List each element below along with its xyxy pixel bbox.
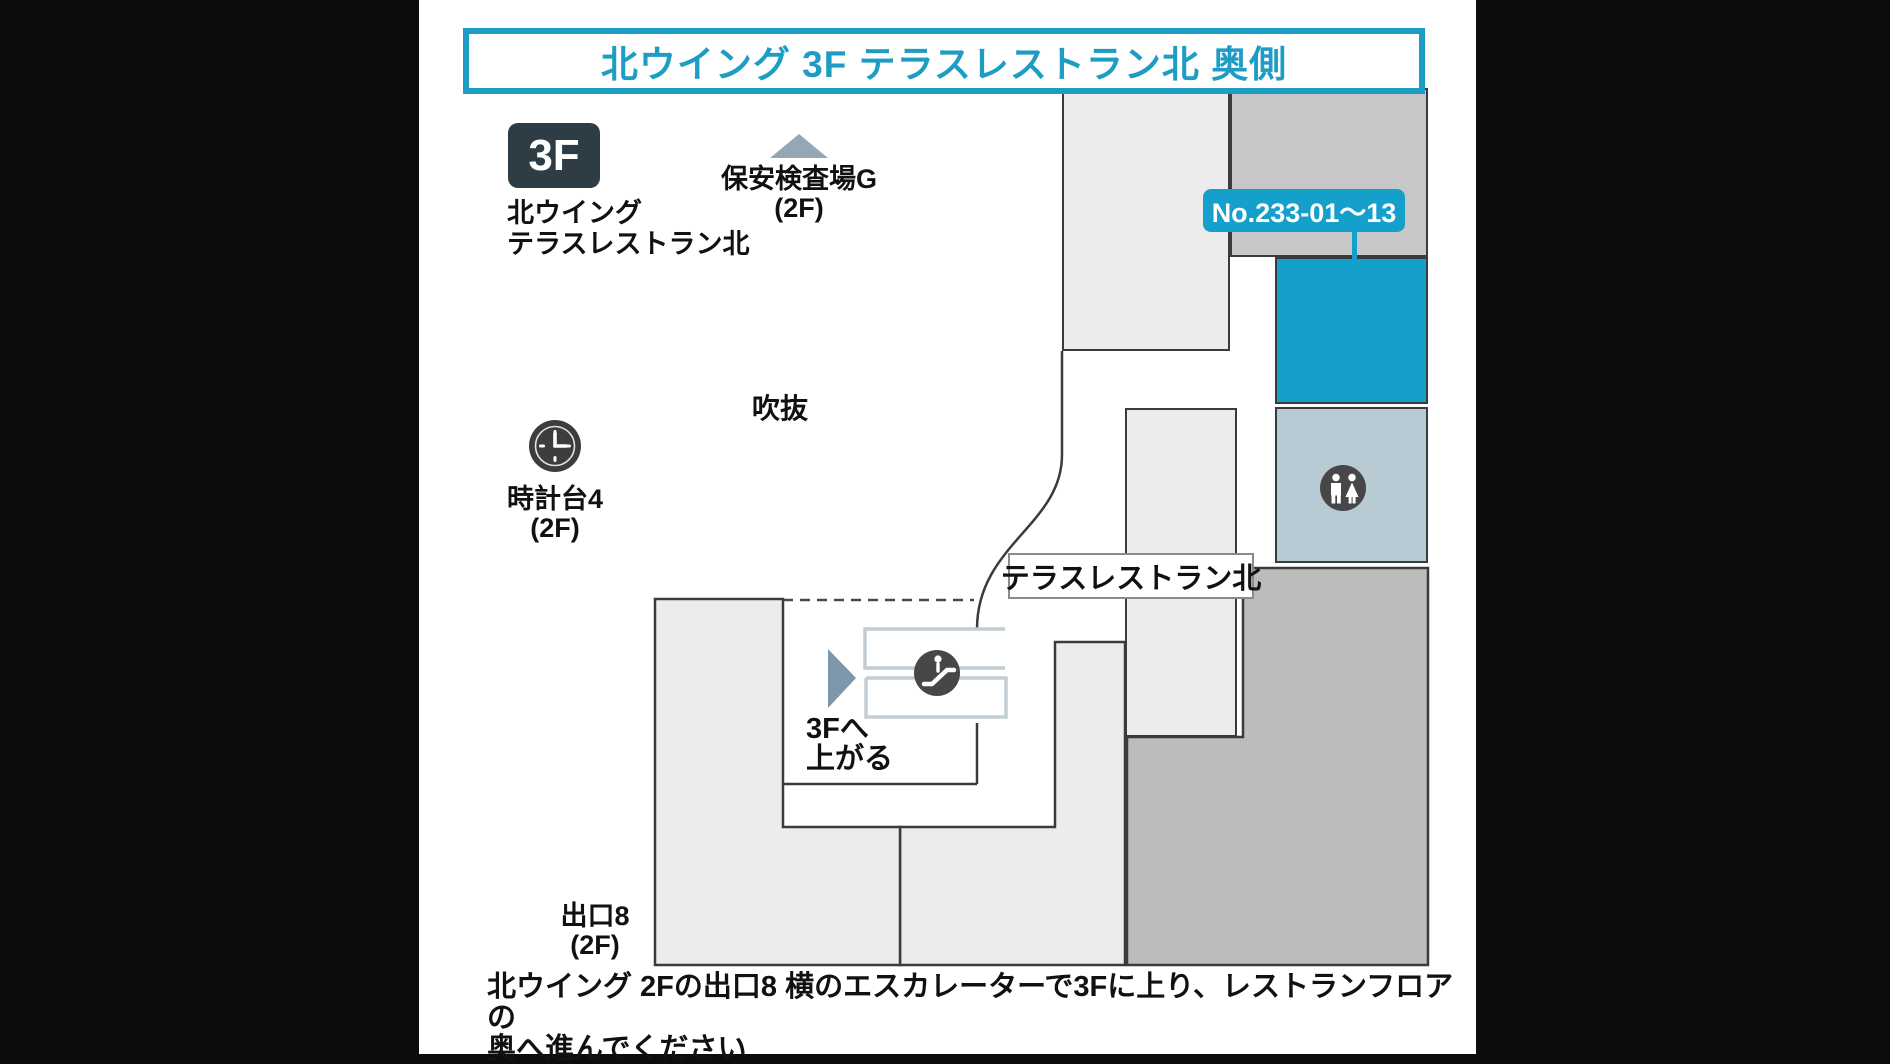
exit8-floor: (2F) [534, 931, 656, 960]
route-note-line1: 北ウイング 2Fの出口8 横のエスカレーターで3Fに上り、レストランフロアの [487, 972, 1477, 1034]
security-checkpoint-label: 保安検査場G (2F) [707, 165, 891, 223]
floor-badge: 3F [508, 123, 600, 188]
restaurant-area-highlight [1275, 257, 1428, 404]
security-checkpoint-floor: (2F) [707, 194, 891, 223]
terrace-restaurant-label: テラスレストラン北 [1008, 553, 1254, 599]
clock-floor: (2F) [493, 514, 617, 543]
security-checkpoint-name: 保安検査場G [707, 165, 891, 194]
atrium-label: 吹抜 [730, 387, 830, 427]
clock-name: 時計台4 [493, 485, 617, 514]
exit8-name: 出口8 [534, 902, 656, 931]
route-note: 北ウイング 2Fの出口8 横のエスカレーターで3Fに上り、レストランフロアの 奥… [487, 972, 1477, 1064]
escalator-direction-line2: 上がる [806, 744, 893, 774]
exit8-label: 出口8 (2F) [534, 902, 656, 960]
floor-badge-caption-line2: テラスレストラン北 [507, 229, 749, 260]
restroom-area [1275, 407, 1428, 563]
escalator-direction-label: 3Fへ 上がる [806, 714, 893, 774]
floor-map-screenshot: 北ウイング 3F テラスレストラン北 奥側 3F 北ウイング テラスレストラン北… [0, 0, 1890, 1064]
map-title-box: 北ウイング 3F テラスレストラン北 奥側 [463, 28, 1425, 94]
escalator-direction-line1: 3Fへ [806, 714, 893, 744]
route-note-line2: 奥へ進んでください [487, 1034, 1477, 1064]
shop-number-callout: No.233-01〜13 [1203, 189, 1405, 232]
clock-label: 時計台4 (2F) [493, 485, 617, 543]
callout-connector [1352, 231, 1357, 259]
map-title: 北ウイング 3F テラスレストラン北 奥側 [601, 34, 1287, 88]
